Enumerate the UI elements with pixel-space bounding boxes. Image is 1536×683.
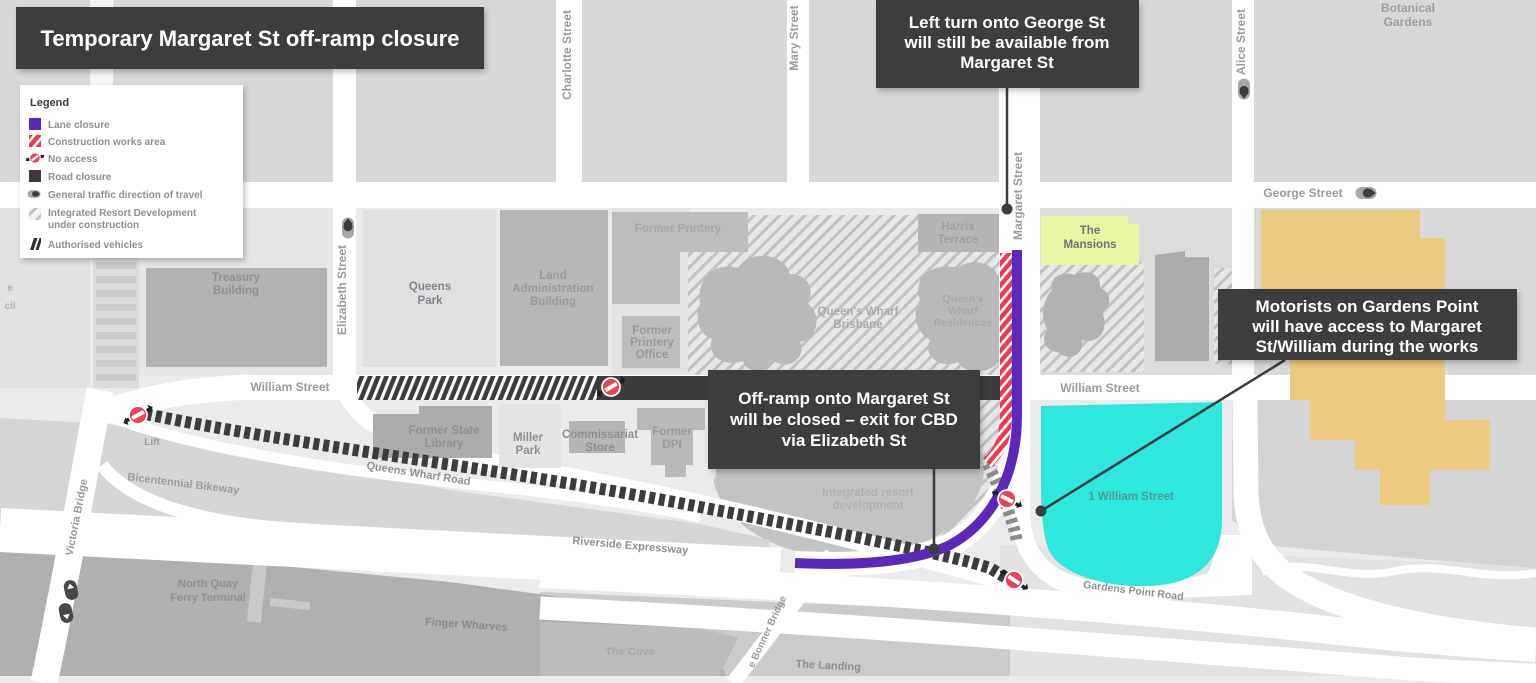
svg-text:Former State: Former State <box>409 425 480 437</box>
svg-text:Botanical: Botanical <box>1381 1 1435 15</box>
svg-text:Miller: Miller <box>513 432 544 444</box>
svg-text:development: development <box>833 500 904 512</box>
svg-text:William Street: William Street <box>1060 381 1139 395</box>
svg-text:Park: Park <box>418 295 444 307</box>
svg-text:Former Printery: Former Printery <box>635 223 722 235</box>
svg-text:George Street: George Street <box>1263 186 1342 200</box>
svg-text:Mary Street: Mary Street <box>787 5 801 70</box>
svg-text:Temporary Margaret St off-ramp: Temporary Margaret St off-ramp closure <box>41 26 460 51</box>
svg-text:St/William during the works: St/William during the works <box>1256 337 1479 356</box>
svg-text:Margaret Street: Margaret Street <box>1011 152 1025 240</box>
svg-text:Land: Land <box>539 270 566 282</box>
svg-text:Former: Former <box>632 325 672 337</box>
svg-text:Queen's Wharf: Queen's Wharf <box>818 306 899 318</box>
svg-text:e: e <box>7 283 13 294</box>
svg-text:via Elizabeth St: via Elizabeth St <box>782 431 907 450</box>
svg-text:Park: Park <box>516 445 542 457</box>
svg-text:will still be available from: will still be available from <box>903 33 1109 52</box>
svg-text:DPI: DPI <box>662 439 681 451</box>
svg-text:Wharf: Wharf <box>948 305 978 317</box>
svg-text:Printery: Printery <box>630 337 674 349</box>
svg-text:Integrated Resort Development: Integrated Resort Development <box>48 208 197 219</box>
svg-text:Store: Store <box>585 442 614 454</box>
svg-text:Former: Former <box>652 426 692 438</box>
svg-text:Queens: Queens <box>409 281 451 293</box>
svg-text:Building: Building <box>530 296 576 308</box>
svg-text:will be closed – exit for CBD: will be closed – exit for CBD <box>729 410 958 429</box>
svg-text:Legend: Legend <box>30 97 69 109</box>
svg-text:Harris: Harris <box>941 221 974 233</box>
svg-text:Queen's: Queen's <box>942 293 983 305</box>
svg-text:Authorised vehicles: Authorised vehicles <box>48 240 143 251</box>
svg-text:General traffic direction of t: General traffic direction of travel <box>48 190 203 201</box>
svg-text:Charlotte Street: Charlotte Street <box>560 10 574 100</box>
svg-text:Ferry Terminal: Ferry Terminal <box>170 592 246 604</box>
svg-text:Library: Library <box>425 438 465 450</box>
svg-text:Brisbane: Brisbane <box>833 319 882 331</box>
svg-text:Treasury: Treasury <box>212 272 261 284</box>
svg-text:No access: No access <box>48 154 98 165</box>
svg-text:will have access to Margaret: will have access to Margaret <box>1251 317 1482 336</box>
svg-text:Gardens: Gardens <box>1384 15 1433 29</box>
svg-text:Terrace: Terrace <box>938 234 979 246</box>
svg-text:Lane closure: Lane closure <box>48 120 110 131</box>
svg-text:Construction works area: Construction works area <box>48 137 166 148</box>
svg-text:Margaret St: Margaret St <box>960 53 1054 72</box>
svg-text:cil: cil <box>4 301 15 312</box>
svg-text:Off-ramp onto Margaret St: Off-ramp onto Margaret St <box>738 389 950 408</box>
svg-text:Elizabeth Street: Elizabeth Street <box>335 245 349 335</box>
svg-text:1 William Street: 1 William Street <box>1088 491 1174 503</box>
svg-text:Office: Office <box>636 349 669 361</box>
svg-text:Alice Street: Alice Street <box>1234 9 1248 75</box>
svg-text:North Quay: North Quay <box>178 578 239 590</box>
svg-text:The Cove: The Cove <box>605 646 655 658</box>
svg-text:Integrated resort: Integrated resort <box>822 487 914 499</box>
svg-text:The: The <box>1080 225 1100 237</box>
svg-text:under construction: under construction <box>48 220 139 231</box>
svg-text:Administration: Administration <box>512 283 593 295</box>
svg-text:Commissariat: Commissariat <box>562 429 638 441</box>
svg-text:Residences: Residences <box>934 317 993 329</box>
svg-text:Left turn onto George St: Left turn onto George St <box>909 13 1106 32</box>
svg-text:Building: Building <box>213 285 259 297</box>
svg-text:Motorists on Gardens Point: Motorists on Gardens Point <box>1256 297 1479 316</box>
svg-text:Mansions: Mansions <box>1063 239 1116 251</box>
svg-text:William Street: William Street <box>250 380 329 394</box>
svg-text:Road closure: Road closure <box>48 172 112 183</box>
svg-text:Lift: Lift <box>144 437 160 448</box>
